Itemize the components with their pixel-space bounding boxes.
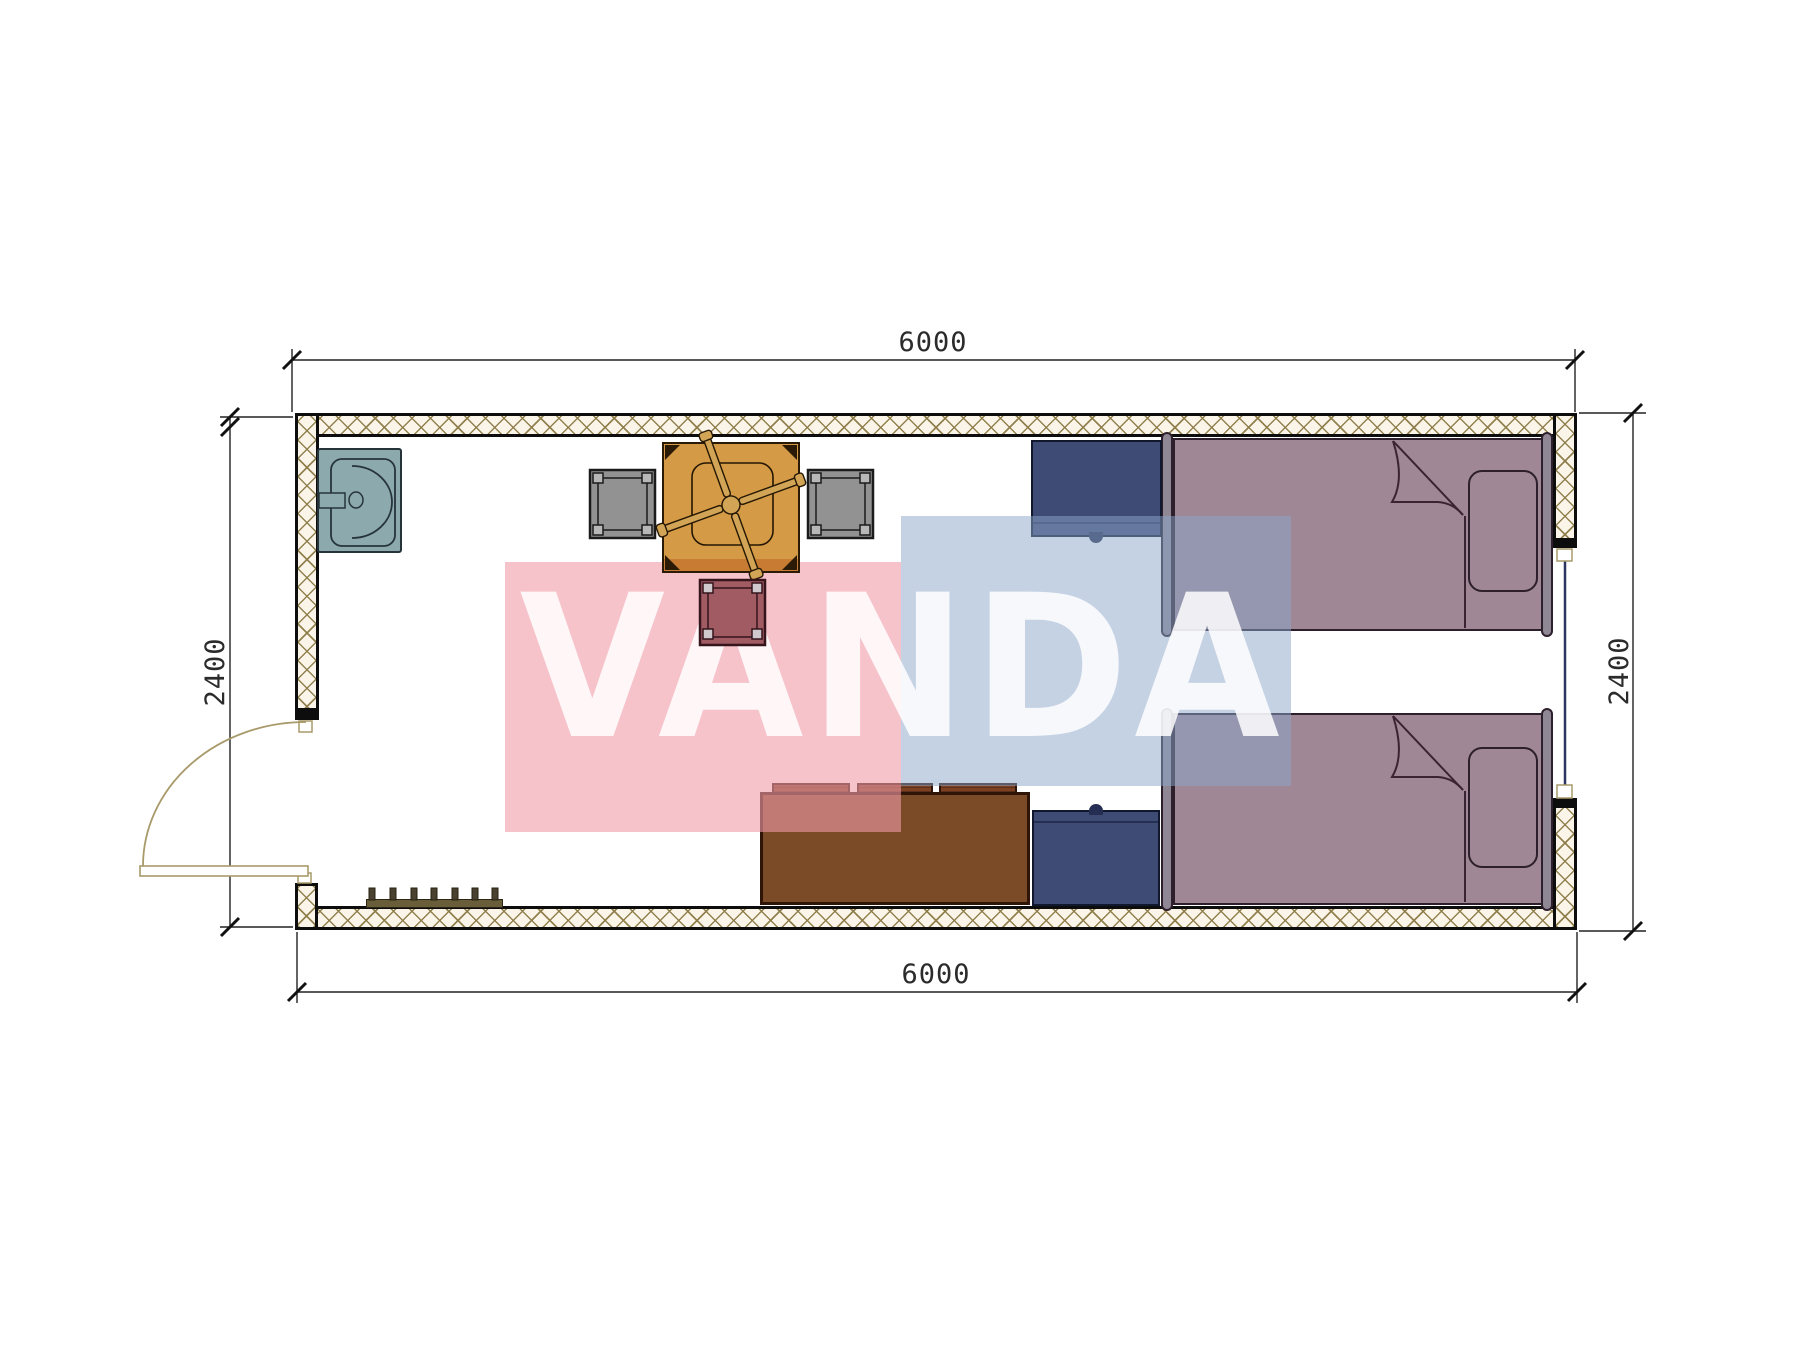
dimension-right-label: 2400 (1605, 606, 1635, 736)
dimension-bottom-label: 6000 (871, 960, 1001, 990)
wall-top (295, 413, 1577, 437)
bed-top-pillow (1468, 470, 1538, 592)
table-edge-strip (664, 559, 798, 571)
bed-bottom-footboard-post (1541, 708, 1553, 911)
sink (317, 448, 402, 553)
dimension-left-label: 2400 (201, 607, 231, 737)
stool-gray-right (808, 470, 873, 538)
stool-gray-left (590, 470, 655, 538)
dimension-top-label: 6000 (868, 328, 998, 358)
table (662, 442, 800, 573)
nightstand-bottom (1032, 810, 1160, 906)
door-leaf (140, 866, 308, 876)
wall-door-jamb-block (295, 883, 318, 930)
floor-plan-canvas: ? (0, 0, 1800, 1350)
wall-right-upper (1553, 413, 1577, 548)
door-swing-arc (143, 722, 306, 866)
watermark-text: VANDA (520, 542, 1285, 792)
wall-bottom (295, 906, 1577, 930)
coat-rack-bar (366, 899, 503, 908)
bed-top-footboard-post (1541, 432, 1553, 637)
wall-left (295, 413, 319, 720)
bed-bottom-pillow (1468, 747, 1538, 868)
wall-right-lower (1553, 798, 1577, 930)
